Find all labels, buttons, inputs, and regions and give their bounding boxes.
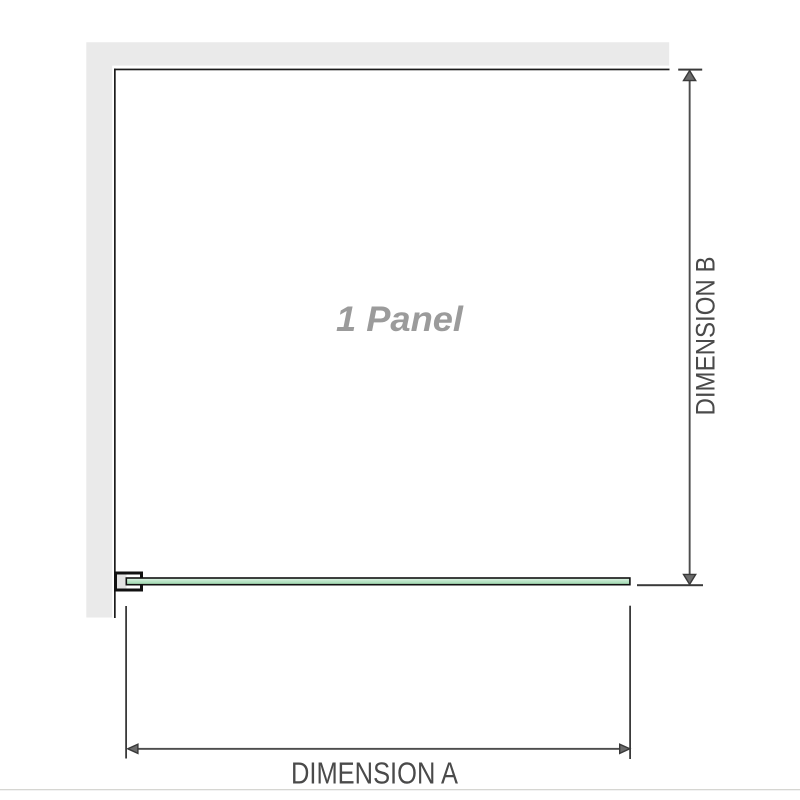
svg-text:DIMENSION A: DIMENSION A xyxy=(291,756,458,791)
svg-text:1 Panel: 1 Panel xyxy=(336,300,464,339)
svg-text:DIMENSION B: DIMENSION B xyxy=(691,257,721,416)
